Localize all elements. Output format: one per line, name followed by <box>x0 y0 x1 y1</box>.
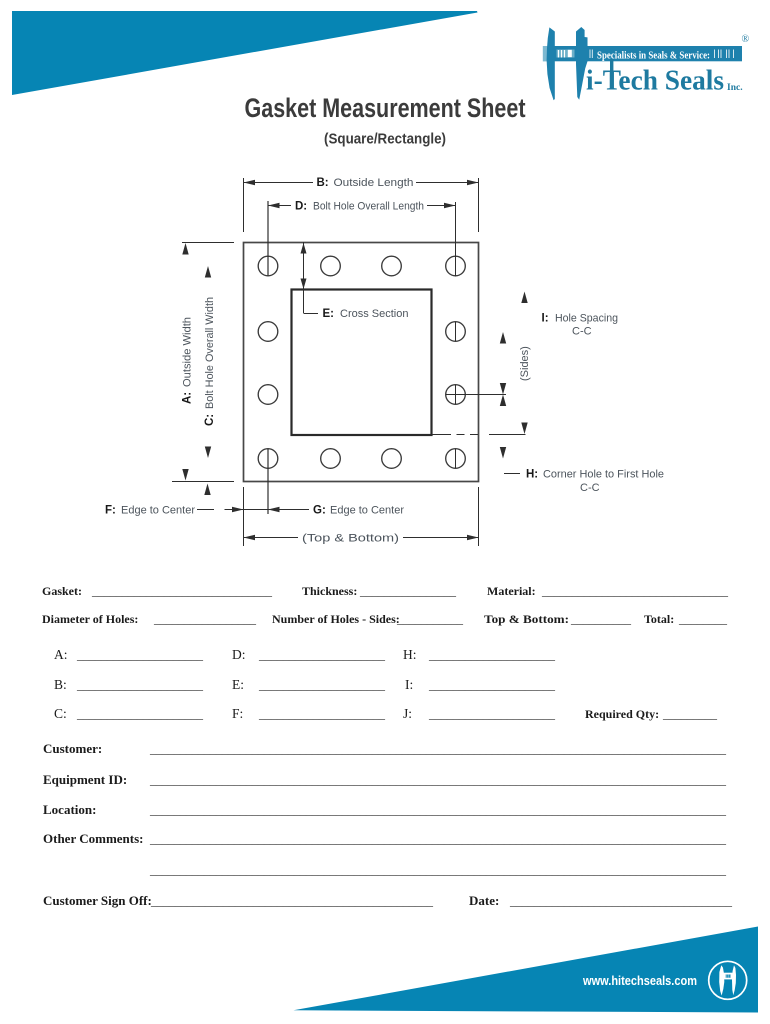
svg-text:H:: H: <box>526 469 538 481</box>
svg-text:Diameter of Holes:: Diameter of Holes: <box>42 612 138 626</box>
svg-text:I:: I: <box>542 313 549 325</box>
svg-text:F:: F: <box>232 706 243 721</box>
svg-text:H:: H: <box>403 647 417 662</box>
svg-text:_____________________: _____________________ <box>428 678 556 692</box>
svg-text:______________________________: ________________________________________… <box>149 832 727 846</box>
svg-text:Bolt Hole Overall Width: Bolt Hole Overall Width <box>204 297 216 409</box>
svg-text:D:: D: <box>232 647 246 662</box>
svg-text:_____________________: _____________________ <box>428 648 556 662</box>
svg-text:______________________________: ______________________________ <box>91 584 273 598</box>
svg-text:Top & Bottom:: Top & Bottom: <box>484 612 569 626</box>
svg-text:A:: A: <box>182 392 194 404</box>
svg-text:Cross Section: Cross Section <box>340 308 408 320</box>
svg-text:______________________________: ________________________________________… <box>149 803 727 817</box>
svg-text:Required Qty:: Required Qty: <box>585 707 659 721</box>
svg-text:www.hitechseals.com: www.hitechseals.com <box>582 973 697 988</box>
svg-text:®: ® <box>742 34 750 45</box>
svg-text:B:: B: <box>317 177 329 189</box>
svg-text:___________: ___________ <box>396 612 464 626</box>
svg-text:______________________________: ________________________________________… <box>149 742 727 756</box>
svg-text:Material:: Material: <box>487 584 536 598</box>
svg-text:E:: E: <box>232 677 244 692</box>
svg-text:J:: J: <box>403 706 412 721</box>
svg-text:__________: __________ <box>570 612 632 626</box>
svg-text:B:: B: <box>54 677 67 692</box>
svg-text:________________: ________________ <box>359 584 457 598</box>
svg-text:________: ________ <box>678 612 728 626</box>
svg-text:_____________________: _____________________ <box>76 678 204 692</box>
svg-text:C:: C: <box>204 414 216 426</box>
svg-text:Outside Width: Outside Width <box>182 317 194 387</box>
svg-text:_____________________: _____________________ <box>76 707 204 721</box>
svg-text:Inc.: Inc. <box>727 83 743 93</box>
svg-text:G:: G: <box>313 505 326 517</box>
svg-text:C:: C: <box>54 706 67 721</box>
svg-text:Number of Holes - Sides:: Number of Holes - Sides: <box>272 612 400 626</box>
svg-text:______________________________: _______________________________ <box>541 584 729 598</box>
svg-text:(Sides): (Sides) <box>519 346 531 381</box>
svg-text:Hole Spacing: Hole Spacing <box>555 313 618 325</box>
svg-text:Outside Length: Outside Length <box>334 177 414 189</box>
svg-text:Date:: Date: <box>469 893 499 908</box>
svg-text:Thickness:: Thickness: <box>302 584 357 598</box>
svg-text:Edge to Center: Edge to Center <box>121 505 195 517</box>
svg-text:_________________: _________________ <box>153 612 257 626</box>
svg-text:(Top & Bottom): (Top & Bottom) <box>302 533 399 545</box>
svg-text:E:: E: <box>323 308 335 320</box>
svg-text:Other Comments:: Other Comments: <box>43 831 144 846</box>
svg-text:_____________________: _____________________ <box>258 648 386 662</box>
svg-text:_____________________: _____________________ <box>258 707 386 721</box>
svg-text:D:: D: <box>295 201 307 213</box>
svg-text:_____________________: _____________________ <box>76 648 204 662</box>
svg-text:Edge to Center: Edge to Center <box>330 505 404 517</box>
svg-text:i-Tech Seals: i-Tech Seals <box>586 65 724 97</box>
svg-text:Total:: Total: <box>644 612 674 626</box>
svg-text:Gasket Measurement Sheet: Gasket Measurement Sheet <box>245 93 526 123</box>
svg-text:______________________________: ________________________________________… <box>150 894 434 908</box>
svg-text:Corner Hole to First Hole: Corner Hole to First Hole <box>543 469 664 481</box>
svg-text:______________________________: ________________________________________… <box>149 863 727 877</box>
svg-text:______________________________: ________________________________________… <box>149 773 727 787</box>
svg-text:Customer Sign Off:: Customer Sign Off: <box>43 893 152 908</box>
svg-text:Gasket:: Gasket: <box>42 584 82 598</box>
svg-text:C-C: C-C <box>580 482 600 494</box>
svg-text:_____________________: _____________________ <box>258 678 386 692</box>
svg-text:Customer:: Customer: <box>43 741 102 756</box>
svg-text:C-C: C-C <box>572 326 592 338</box>
svg-text:_____________________: _____________________ <box>428 707 556 721</box>
svg-text:F:: F: <box>105 505 116 517</box>
svg-text:Bolt Hole Overall Length: Bolt Hole Overall Length <box>313 201 424 213</box>
svg-text:(Square/Rectangle): (Square/Rectangle) <box>324 131 446 148</box>
svg-text:_________: _________ <box>662 707 718 721</box>
svg-text:Equipment ID:: Equipment ID: <box>43 772 127 787</box>
svg-text:A:: A: <box>54 647 68 662</box>
svg-text:I:: I: <box>405 677 413 692</box>
svg-text:Location:: Location: <box>43 802 96 817</box>
svg-text:Specialists in Seals & Service: Specialists in Seals & Service: <box>597 50 710 61</box>
svg-text:______________________________: _____________________________________ <box>509 894 733 908</box>
